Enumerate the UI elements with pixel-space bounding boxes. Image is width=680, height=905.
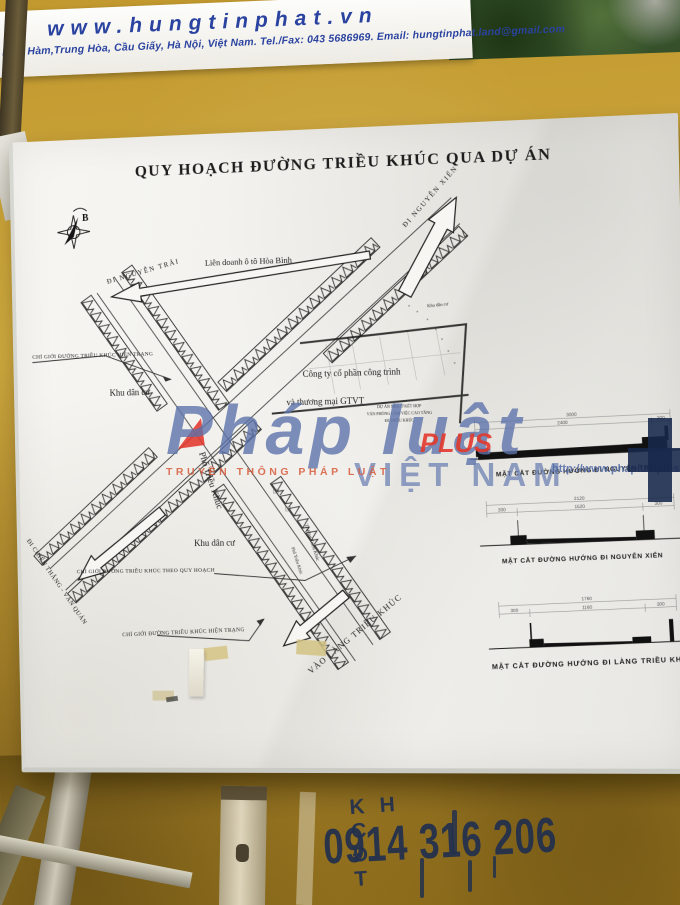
dim-right: 300 [654, 500, 663, 506]
project-parcels [270, 303, 471, 511]
planning-board: QUY HOẠCH ĐƯỜNG TRIỀU KHÚC QUA DỰ ÁN B [9, 113, 680, 774]
label-cong-ty-2: và thương mại GTVT [286, 395, 365, 407]
road-trieu-khuc-bands [80, 256, 391, 671]
cross-section-nguyen-trai: 3000 2400 300 MẶT CẮT ĐƯỜNG HƯỚNG ĐI NGU… [468, 407, 680, 480]
paper-strip [189, 649, 204, 697]
planning-map-svg: QUY HOẠCH ĐƯỜNG TRIỀU KHÚC QUA DỰ ÁN B [13, 113, 680, 765]
cross-section-nguyen-xien: 2120 300 1520 300 MẶT CẮT ĐƯỜNG HƯỚNG ĐI… [478, 491, 680, 566]
photo-scene: www.hungtinphat.vn ham Hàm,Trung Hòa, Cầ… [0, 0, 680, 905]
cross-section-caption: MẶT CẮT ĐƯỜNG HƯỚNG ĐI NGUYỄN XIỂN [502, 550, 664, 566]
dim-mid: 1520 [574, 504, 585, 510]
label-khu-dan-cu-west: Khu dân cư [110, 387, 152, 398]
dim-mid: 1160 [582, 604, 593, 610]
dim-left: 300 [510, 608, 519, 613]
paint-drip [493, 856, 496, 878]
cross-section-caption: MẶT CẮT ĐƯỜNG HƯỚNG ĐI NGUYỄN TRÃI [496, 462, 658, 479]
dim-mid: 2400 [557, 420, 568, 426]
dim-right: 300 [657, 415, 666, 421]
cross-section-caption: MẶT CẮT ĐƯỜNG HƯỚNG ĐI LÀNG TRIỀU KHÚC [492, 653, 680, 671]
concrete-post [219, 786, 267, 905]
dim-total: 1760 [581, 596, 592, 602]
compass-rose: B [57, 208, 90, 249]
board-title: QUY HOẠCH ĐƯỜNG TRIỀU KHÚC QUA DỰ ÁN [135, 144, 552, 181]
tape-piece [296, 639, 326, 656]
label-du-an-3: ĐI TRIỀU KHÚC [385, 417, 415, 423]
paint-drip [420, 858, 424, 898]
label-du-an-2: VĂN PHÒNG LÀM VIỆC CAO TẦNG [367, 410, 433, 417]
post-stain [236, 844, 249, 862]
dim-total: 3000 [566, 412, 577, 418]
paint-drip [468, 860, 472, 892]
post-band [221, 786, 267, 801]
compass-north-label: B [82, 213, 89, 224]
dim-right: 300 [657, 601, 666, 607]
label-khu-dan-cu-south: Khu dân cư [194, 537, 236, 548]
label-khu-dan-cu-small: Khu dân cư [427, 301, 449, 308]
tape-piece [203, 646, 228, 661]
label-cong-ty-1: Công ty cổ phần công trình [303, 366, 402, 379]
label-du-an-1: DỰ ÁN NHÀ Ở KẾT HỢP [377, 403, 422, 409]
dim-left: 300 [498, 507, 507, 512]
paint-drip [452, 810, 457, 854]
map-labels: Liên doanh ô tô Hòa Bình ĐI NGUYỄN TRÃI … [18, 164, 470, 677]
dim-total: 2120 [574, 495, 585, 501]
label-chi-gioi-hien-trang-bottom: CHỈ GIỚI ĐƯỜNG TRIỀU KHÚC HIỆN TRẠNG [122, 625, 245, 638]
cross-section-lang-trieu-khuc: 1760 300 1160 300 MẶT CẮT ĐƯỜNG HƯỚNG ĐI… [486, 591, 680, 671]
